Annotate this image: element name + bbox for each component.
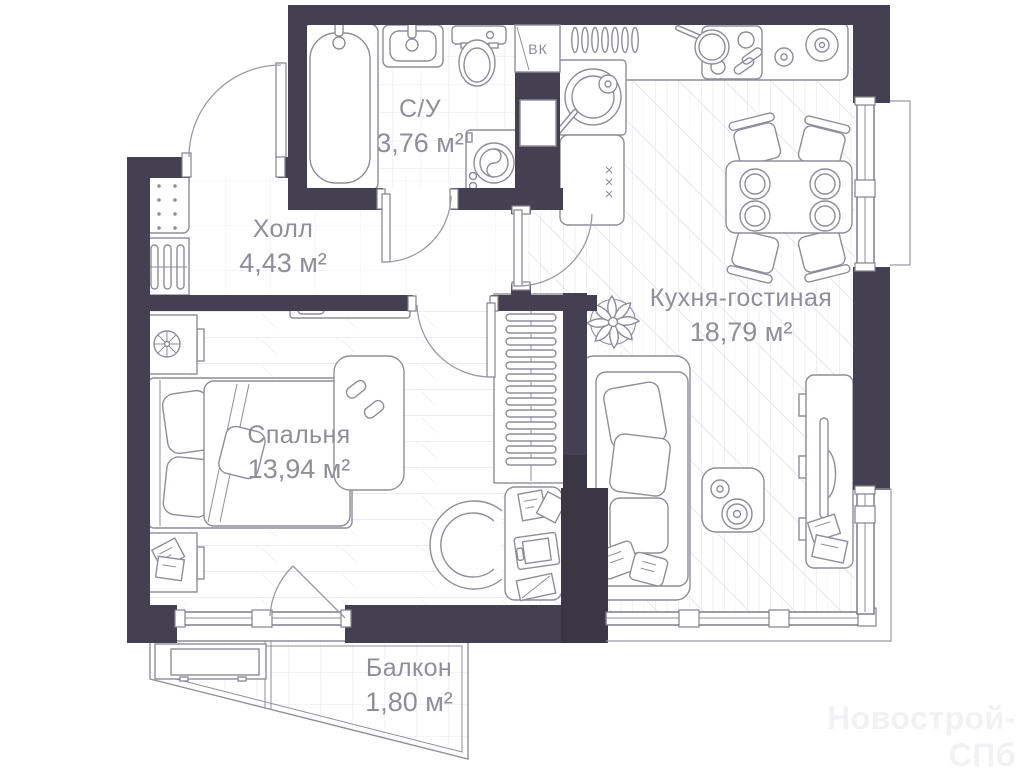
laptop-icon xyxy=(514,532,560,570)
floor-plan: С/У 3,76 м² Холл 4,43 м² Кухня-гостиная … xyxy=(0,0,1019,768)
wardrobe xyxy=(494,294,564,483)
desk xyxy=(505,487,566,601)
shoe-cabinet xyxy=(145,172,189,233)
wall-corner-block xyxy=(561,488,608,643)
ac-unit xyxy=(147,315,204,374)
sill-kitchen xyxy=(890,101,910,265)
coffee-table xyxy=(702,468,764,532)
wall-right-top xyxy=(853,5,890,103)
wall-wardrobe-upper xyxy=(563,293,587,455)
window-kitchen-east xyxy=(855,97,875,271)
pouf xyxy=(147,533,204,592)
floor-plan-drawing xyxy=(0,0,1019,768)
wall-left xyxy=(127,157,150,643)
bathroom-sink xyxy=(383,22,443,67)
hall-wardrobe xyxy=(145,238,189,295)
entrance-door xyxy=(182,63,286,177)
bedside-rug xyxy=(334,356,404,490)
bathtub xyxy=(303,22,378,191)
tv-stand xyxy=(799,375,853,568)
wall-bathroom-left xyxy=(288,5,307,210)
wall-hall-top xyxy=(127,157,190,178)
window-balcony xyxy=(175,610,351,627)
tv-icon xyxy=(820,418,828,518)
wall-bedroom-top-left xyxy=(145,295,413,311)
fridge xyxy=(560,135,624,225)
washing-machine xyxy=(466,130,518,192)
wall-right-mid xyxy=(853,267,890,490)
balcony-bench xyxy=(155,644,266,681)
wall-top xyxy=(288,5,890,25)
wall-bottom-left xyxy=(127,605,177,643)
window-living-east xyxy=(855,486,875,614)
balcony xyxy=(150,641,468,759)
watermark: Новострой-СПб xyxy=(788,700,1016,768)
wall-bathroom-bottom xyxy=(288,188,383,210)
bed xyxy=(148,378,352,528)
vent-shaft-label: ВК xyxy=(528,41,548,57)
